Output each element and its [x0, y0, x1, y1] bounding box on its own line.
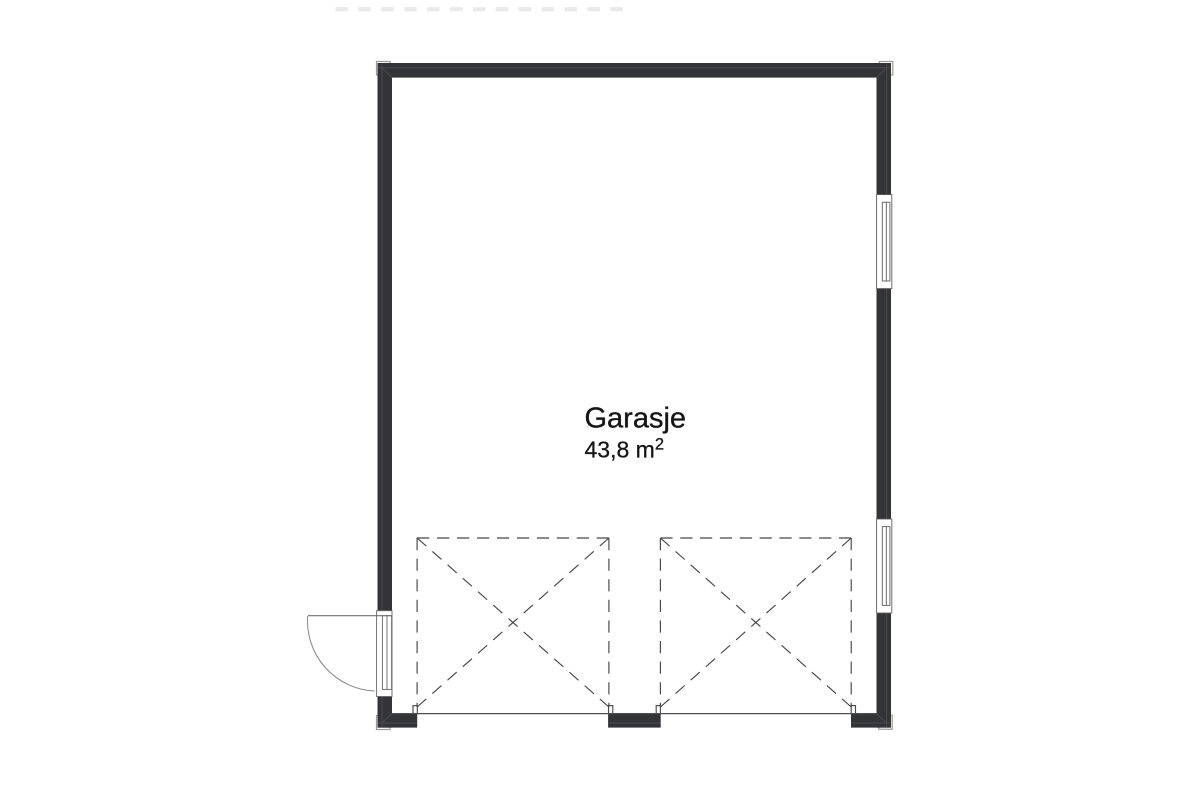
svg-text:43,8 m2: 43,8 m2	[585, 436, 665, 463]
svg-text:Garasje: Garasje	[585, 403, 687, 435]
